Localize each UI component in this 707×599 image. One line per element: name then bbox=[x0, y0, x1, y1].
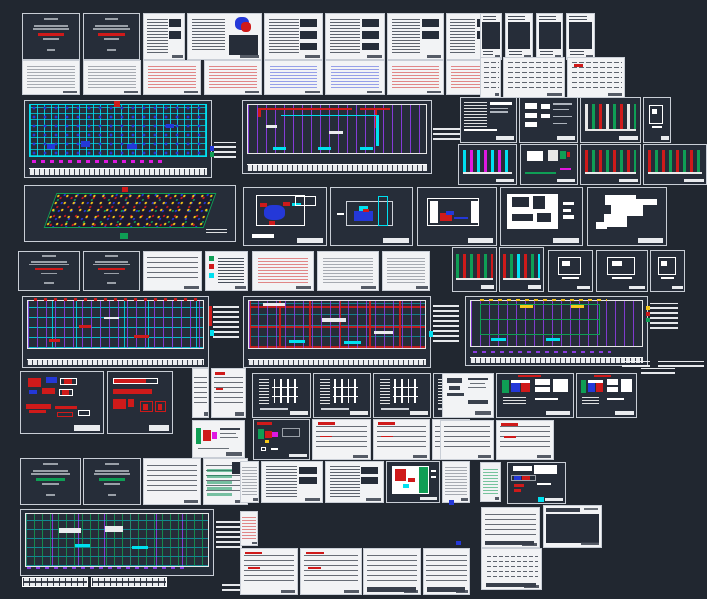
sheet-annot-1[interactable] bbox=[622, 361, 650, 367]
plan-drawing-field bbox=[248, 300, 427, 349]
sheet-detail-rh[interactable] bbox=[107, 371, 173, 434]
decor-shape bbox=[259, 378, 269, 404]
sheet-detail-box-3[interactable] bbox=[548, 250, 593, 292]
decor-shape bbox=[220, 428, 240, 429]
marker bbox=[120, 233, 128, 239]
annotation bbox=[206, 229, 227, 233]
sheet-tbl-8[interactable] bbox=[496, 420, 554, 460]
dimension-strip bbox=[470, 357, 644, 363]
decor-shape bbox=[264, 205, 285, 220]
sheet-plan-ceiling[interactable] bbox=[24, 100, 212, 178]
decor-shape bbox=[535, 398, 558, 400]
sheet-notes-6[interactable] bbox=[261, 461, 323, 503]
title-text bbox=[107, 282, 116, 284]
sheet-plan-sprk[interactable] bbox=[243, 296, 431, 368]
decor-shape bbox=[344, 341, 361, 344]
decor-shape bbox=[464, 129, 497, 131]
decor-shape bbox=[360, 147, 373, 150]
sheet-riser-1[interactable] bbox=[580, 97, 641, 143]
footer-text bbox=[509, 51, 523, 55]
decor-shape bbox=[64, 379, 72, 384]
decor-shape bbox=[454, 217, 468, 219]
footer-text bbox=[570, 51, 584, 55]
decor-shape bbox=[258, 110, 261, 117]
decor-shape bbox=[511, 380, 531, 383]
title-text bbox=[94, 473, 131, 474]
sheet-tbl-2[interactable] bbox=[192, 368, 209, 418]
dark-body-block bbox=[508, 22, 531, 49]
title-text bbox=[46, 494, 55, 496]
title-text bbox=[43, 38, 59, 40]
sheet-annot-plan3[interactable] bbox=[213, 304, 239, 338]
sheet-dim-1[interactable] bbox=[22, 577, 88, 587]
decor-shape bbox=[447, 378, 462, 383]
decor-shape bbox=[562, 261, 571, 266]
decor-shape bbox=[658, 257, 676, 275]
dark-text-block bbox=[299, 467, 317, 474]
decor-shape bbox=[535, 379, 550, 385]
decor-shape bbox=[57, 412, 73, 417]
sheet-doc-1[interactable] bbox=[22, 60, 80, 95]
sheet-glyph-3[interactable] bbox=[209, 306, 212, 326]
column-grid-ticks bbox=[32, 160, 162, 162]
sheet-iso-sprinkler[interactable] bbox=[24, 185, 236, 242]
base-line bbox=[585, 129, 636, 131]
sheet-sections-1[interactable] bbox=[452, 247, 497, 292]
decor-shape bbox=[546, 508, 580, 512]
sheet-annot-5[interactable] bbox=[222, 583, 242, 591]
dimension-strip bbox=[248, 359, 427, 365]
decor-shape bbox=[430, 201, 438, 224]
red-mark bbox=[504, 436, 516, 438]
decor-shape bbox=[104, 317, 119, 320]
riser-pipes bbox=[585, 104, 636, 129]
sheet-sched-2[interactable] bbox=[505, 13, 533, 60]
sheet-detail-da[interactable] bbox=[543, 505, 602, 548]
sheet-doc-12[interactable] bbox=[240, 461, 259, 503]
sheet-detail-sil[interactable] bbox=[587, 187, 667, 246]
sheet-doc-11[interactable] bbox=[382, 251, 430, 291]
riser-pipes bbox=[585, 150, 636, 172]
dark-text-block bbox=[300, 31, 317, 39]
decor-shape bbox=[261, 447, 267, 451]
title-text bbox=[93, 264, 129, 265]
sheet-glyph-10[interactable] bbox=[456, 541, 461, 545]
decor-shape bbox=[464, 102, 487, 126]
decor-shape bbox=[431, 476, 436, 478]
decor-shape bbox=[318, 147, 331, 150]
decor-shape bbox=[333, 387, 358, 388]
decor-shape bbox=[46, 377, 57, 383]
decor-shape bbox=[212, 432, 217, 439]
title-text bbox=[44, 18, 57, 20]
decor-shape bbox=[113, 399, 126, 409]
dark-footer bbox=[367, 587, 415, 592]
title-text bbox=[104, 38, 119, 40]
sheet-tbl-16[interactable] bbox=[481, 548, 542, 590]
sheet-tbl-r2a[interactable] bbox=[480, 57, 501, 98]
sheet-detail-rb[interactable] bbox=[20, 371, 104, 434]
sheet-riser-2[interactable] bbox=[458, 144, 517, 185]
sheet-doc-2[interactable] bbox=[83, 60, 141, 95]
red-mark bbox=[245, 552, 262, 555]
sheet-detail-box-5[interactable] bbox=[650, 250, 685, 292]
decor-shape bbox=[348, 379, 350, 403]
sheet-tbl-4[interactable] bbox=[312, 419, 371, 460]
sheet-drw-2[interactable] bbox=[313, 373, 371, 418]
sheet-detail-gb[interactable] bbox=[386, 461, 440, 503]
decor-shape bbox=[588, 380, 603, 383]
sheet-detail-box-2[interactable] bbox=[500, 187, 583, 246]
sheet-detail-pr2[interactable] bbox=[576, 373, 637, 418]
sheet-glyph-11[interactable] bbox=[538, 497, 544, 502]
sheet-notes-2[interactable] bbox=[264, 13, 323, 60]
decor-shape bbox=[393, 387, 418, 388]
decor-shape bbox=[26, 404, 51, 409]
sheet-tbl-1[interactable] bbox=[143, 251, 202, 291]
decor-shape bbox=[393, 396, 418, 397]
title-text bbox=[104, 273, 119, 275]
dimension-strip bbox=[27, 359, 205, 365]
decor-shape bbox=[563, 209, 571, 212]
dark-footer bbox=[427, 587, 466, 592]
sheet-logo-sheet[interactable] bbox=[187, 13, 262, 60]
sheet-tbl-r2b[interactable] bbox=[503, 57, 565, 98]
decor-shape bbox=[337, 213, 343, 215]
decor-shape bbox=[320, 378, 330, 404]
sheet-notes-7[interactable] bbox=[325, 461, 384, 503]
title-text bbox=[29, 264, 69, 265]
sheet-doc-9[interactable] bbox=[252, 251, 314, 291]
sheet-dim-2[interactable] bbox=[91, 577, 167, 587]
dark-body-block bbox=[569, 22, 593, 49]
decor-shape bbox=[490, 111, 509, 113]
sheet-plan-piping[interactable] bbox=[242, 100, 432, 174]
sheet-legend-2[interactable] bbox=[650, 303, 678, 329]
decor-shape bbox=[596, 222, 607, 229]
decor-shape bbox=[42, 388, 55, 394]
header-text bbox=[508, 16, 525, 20]
decor-shape bbox=[132, 546, 147, 549]
sheet-detail-tank-1[interactable] bbox=[330, 187, 413, 246]
decor-shape bbox=[612, 277, 632, 279]
dark-text-block bbox=[422, 31, 439, 39]
sheet-glyph-7[interactable] bbox=[646, 312, 650, 316]
sheet-detail-bw[interactable] bbox=[442, 373, 494, 418]
revision-flag bbox=[114, 101, 120, 107]
sheet-doc-7[interactable] bbox=[387, 60, 444, 95]
dark-text-block bbox=[362, 43, 379, 51]
sheet-detail-pg[interactable] bbox=[507, 462, 566, 504]
dark-text-block bbox=[169, 31, 181, 39]
sheet-cover-6[interactable] bbox=[83, 458, 141, 505]
title-text bbox=[108, 494, 117, 496]
decor-shape bbox=[354, 379, 356, 403]
riser-pipes bbox=[648, 150, 701, 172]
decor-shape bbox=[512, 214, 533, 221]
accent-title-bar bbox=[35, 268, 64, 270]
riser-pipes bbox=[503, 254, 540, 278]
sheet-glyph-8[interactable] bbox=[646, 318, 650, 322]
decor-shape bbox=[105, 526, 122, 533]
red-mark bbox=[381, 436, 393, 438]
decor-shape bbox=[612, 261, 622, 266]
sheet-annot-plan1[interactable] bbox=[214, 142, 236, 158]
decor-shape bbox=[274, 379, 276, 403]
decor-shape bbox=[265, 431, 272, 438]
sheet-annot-plan4[interactable] bbox=[433, 302, 459, 342]
decor-shape bbox=[584, 508, 598, 510]
riser-pipes bbox=[456, 254, 493, 278]
sheet-sections-2[interactable] bbox=[499, 247, 544, 292]
decor-shape bbox=[203, 430, 211, 441]
sheet-drw-3[interactable] bbox=[373, 373, 431, 418]
sheet-cover-4[interactable] bbox=[83, 251, 140, 291]
legend-chip-red bbox=[209, 264, 214, 269]
decor-shape bbox=[376, 115, 379, 145]
decor-shape bbox=[47, 144, 54, 149]
sheet-detail-blocks[interactable] bbox=[519, 97, 578, 143]
sheet-glyph-9[interactable] bbox=[449, 500, 454, 505]
decor-shape bbox=[546, 514, 598, 543]
decor-shape bbox=[546, 338, 560, 341]
decor-shape bbox=[419, 467, 427, 493]
decor-shape bbox=[408, 478, 415, 482]
decor-shape bbox=[49, 339, 60, 342]
decor-shape bbox=[582, 396, 600, 404]
red-mark bbox=[308, 567, 321, 569]
sheet-riser-3[interactable] bbox=[580, 144, 641, 185]
red-mark bbox=[501, 423, 518, 425]
base-line bbox=[648, 172, 701, 174]
legend-chip-green bbox=[209, 256, 214, 261]
sheet-tbl-13[interactable] bbox=[363, 548, 421, 595]
title-text bbox=[107, 49, 116, 51]
dark-text-block bbox=[362, 31, 379, 39]
sheet-notes-1[interactable] bbox=[143, 13, 185, 60]
decor-shape bbox=[272, 387, 298, 388]
decor-shape bbox=[553, 116, 572, 118]
decor-shape bbox=[661, 277, 674, 279]
base-line bbox=[585, 172, 636, 174]
sheet-notes-4[interactable] bbox=[387, 13, 444, 60]
decor-shape bbox=[541, 104, 550, 108]
sheet-doc-5[interactable] bbox=[264, 60, 323, 95]
decor-shape bbox=[258, 429, 264, 439]
decor-shape bbox=[512, 197, 528, 207]
sheet-annot-2[interactable] bbox=[658, 361, 704, 367]
decor-shape bbox=[548, 150, 558, 162]
sheet-legend-1[interactable] bbox=[205, 251, 248, 291]
decor-shape bbox=[553, 123, 567, 125]
decor-shape bbox=[166, 124, 173, 129]
decor-shape bbox=[581, 380, 587, 393]
sheet-tbl-5[interactable] bbox=[373, 419, 430, 460]
accent-title-bar bbox=[99, 478, 126, 481]
decor-shape bbox=[414, 379, 416, 403]
decor-shape bbox=[514, 476, 521, 480]
decor-shape bbox=[282, 428, 301, 437]
dark-text-block bbox=[362, 19, 379, 27]
title-text bbox=[42, 255, 56, 257]
base-line bbox=[456, 278, 493, 280]
decor-shape bbox=[514, 484, 524, 487]
decor-shape bbox=[562, 277, 579, 279]
decor-shape bbox=[563, 215, 574, 218]
sheet-glyph-2[interactable] bbox=[210, 152, 214, 157]
decor-shape bbox=[480, 299, 607, 301]
decor-shape bbox=[143, 404, 148, 410]
title-text bbox=[43, 463, 57, 465]
sheet-tbl-3[interactable] bbox=[211, 368, 246, 418]
sheet-annot-plan2[interactable] bbox=[433, 128, 461, 140]
sheet-detail-grw[interactable] bbox=[192, 420, 245, 458]
decor-shape bbox=[381, 408, 409, 410]
decor-shape bbox=[520, 305, 533, 308]
sheet-tbl-7[interactable] bbox=[440, 420, 494, 460]
dark-body-block bbox=[539, 22, 561, 49]
decor-shape bbox=[521, 383, 530, 392]
footer-text bbox=[483, 51, 493, 55]
title-text bbox=[93, 28, 129, 29]
sheet-annot-4[interactable] bbox=[216, 518, 242, 548]
sheet-detail-tank-2[interactable] bbox=[417, 187, 497, 246]
dark-text-block bbox=[169, 19, 181, 27]
title-text bbox=[95, 470, 129, 472]
sheet-doc-10[interactable] bbox=[317, 251, 379, 291]
sheet-detail-pump-1[interactable] bbox=[243, 187, 327, 246]
sheet-glyph-1[interactable] bbox=[210, 146, 214, 151]
red-mark bbox=[216, 388, 223, 390]
dark-text-block bbox=[300, 19, 317, 27]
sheet-glyph-6[interactable] bbox=[646, 306, 650, 310]
decor-shape bbox=[408, 379, 410, 403]
sheet-doc-4[interactable] bbox=[204, 60, 262, 95]
decor-shape bbox=[272, 396, 298, 397]
decor-shape bbox=[134, 335, 149, 338]
decor-shape bbox=[272, 432, 278, 437]
sheet-doc-14[interactable] bbox=[480, 462, 501, 502]
decor-shape bbox=[295, 196, 316, 206]
sheet-cover-2[interactable] bbox=[83, 13, 140, 60]
sheet-doc-15[interactable] bbox=[240, 511, 258, 546]
decor-shape bbox=[380, 378, 390, 404]
cad-model-canvas[interactable] bbox=[0, 0, 707, 599]
sheet-doc-6[interactable] bbox=[325, 60, 385, 95]
decor-shape bbox=[283, 202, 290, 206]
sheet-tbl-15[interactable] bbox=[481, 507, 540, 548]
red-mark bbox=[378, 422, 395, 424]
sheet-detail-gm[interactable] bbox=[253, 419, 310, 460]
sheet-detail-pr1[interactable] bbox=[496, 373, 574, 418]
decor-shape bbox=[607, 379, 619, 385]
title-text bbox=[44, 282, 54, 284]
green-rows bbox=[207, 469, 232, 496]
decor-shape bbox=[127, 144, 136, 149]
sheet-plan-base[interactable] bbox=[20, 509, 214, 576]
sheet-detail-box-4[interactable] bbox=[596, 250, 648, 292]
sheet-notes-3[interactable] bbox=[325, 13, 385, 60]
decor-shape bbox=[525, 122, 538, 127]
decor-shape bbox=[553, 379, 568, 392]
decor-shape bbox=[468, 387, 486, 388]
sheet-drw-1[interactable] bbox=[252, 373, 311, 418]
decor-shape bbox=[401, 379, 403, 403]
sheet-cover-3[interactable] bbox=[18, 251, 80, 291]
decor-shape bbox=[511, 383, 520, 392]
decor-shape bbox=[114, 379, 146, 383]
sheet-cover-5[interactable] bbox=[20, 458, 81, 505]
decor-shape bbox=[567, 152, 570, 157]
decor-shape bbox=[525, 113, 538, 118]
sheet-tbl-r2c[interactable] bbox=[567, 57, 625, 98]
decor-shape bbox=[560, 151, 566, 159]
sheet-cover-1[interactable] bbox=[22, 13, 80, 60]
decor-shape bbox=[518, 375, 541, 378]
decor-shape bbox=[513, 466, 532, 471]
decor-shape bbox=[473, 351, 611, 353]
decor-shape bbox=[27, 567, 184, 569]
dark-text-block bbox=[300, 43, 317, 51]
decor-shape bbox=[468, 400, 488, 404]
sheet-detail-hatch[interactable] bbox=[460, 97, 517, 143]
decor-shape bbox=[280, 379, 282, 403]
accent-title-bar bbox=[38, 33, 65, 36]
sheet-tbl-14[interactable] bbox=[423, 548, 470, 595]
sheet-detail-arrow[interactable] bbox=[520, 144, 578, 185]
sheet-doc-3[interactable] bbox=[143, 60, 201, 95]
decor-shape bbox=[468, 378, 488, 380]
decor-shape bbox=[558, 257, 582, 275]
sheet-doc-13[interactable] bbox=[442, 461, 470, 503]
sheet-sched-3[interactable] bbox=[536, 13, 563, 60]
sheet-detail-box-1[interactable] bbox=[643, 97, 671, 143]
sheet-plan-fire[interactable] bbox=[22, 296, 209, 368]
title-text bbox=[47, 49, 56, 51]
riser-pipes bbox=[463, 150, 512, 172]
sheet-sched-1[interactable] bbox=[480, 13, 502, 60]
decor-shape bbox=[491, 338, 505, 341]
decor-shape bbox=[560, 168, 571, 170]
decor-shape bbox=[158, 404, 162, 410]
sheet-annot-3[interactable] bbox=[641, 368, 675, 374]
sheet-riser-4[interactable] bbox=[643, 144, 707, 185]
title-text bbox=[33, 470, 68, 472]
sheet-tbl-11[interactable] bbox=[240, 548, 298, 595]
decor-shape bbox=[128, 399, 133, 408]
decor-shape bbox=[527, 151, 544, 161]
decor-shape bbox=[553, 103, 572, 105]
decor-shape bbox=[257, 422, 271, 424]
sheet-plan-drain[interactable] bbox=[465, 296, 648, 366]
decor-shape bbox=[29, 390, 37, 394]
decor-shape bbox=[354, 211, 373, 221]
decor-shape bbox=[198, 448, 229, 449]
red-mark bbox=[215, 372, 225, 375]
dark-text-block bbox=[299, 477, 317, 484]
sheet-tbl-9[interactable] bbox=[143, 458, 201, 505]
plan-drawing-field bbox=[29, 104, 208, 157]
sheet-glyph-4[interactable] bbox=[210, 330, 214, 336]
decor-shape bbox=[271, 448, 279, 450]
sheet-sched-4[interactable] bbox=[566, 13, 595, 60]
sheet-glyph-5[interactable] bbox=[429, 331, 433, 337]
decor-shape bbox=[503, 396, 526, 404]
decor-shape bbox=[281, 115, 379, 116]
decor-shape bbox=[59, 528, 80, 533]
decor-shape bbox=[604, 214, 627, 227]
sheet-tbl-12[interactable] bbox=[300, 548, 362, 595]
